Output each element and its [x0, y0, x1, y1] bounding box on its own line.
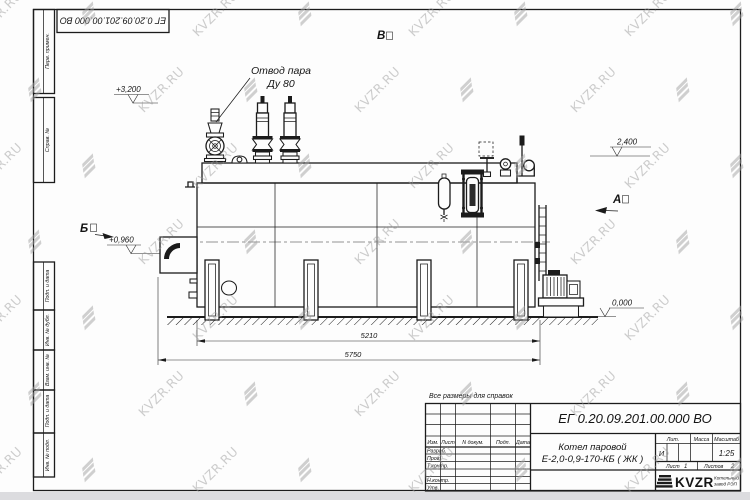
tb-row-prov: Пров. — [427, 456, 441, 462]
cad-canvas: Перв. примен. Справ. № Подп. и дата Инв.… — [0, 0, 750, 500]
stamp-vzam-inv: Взам. инв. № — [45, 354, 51, 386]
company-note-line1: Котельный — [714, 475, 739, 481]
tb-col-izm: Изм. — [427, 440, 438, 446]
tb-scale-label: Масштаб — [714, 437, 740, 443]
elevation-2400-label: 2,400 — [616, 138, 638, 147]
drawing-sheet: Перв. примен. Справ. № Подп. и дата Инв.… — [0, 0, 750, 500]
tb-sheets-label: Листов — [703, 464, 724, 470]
level-gauge-large — [461, 170, 484, 218]
callout-line1: Отвод пара — [251, 65, 311, 77]
dim-5210-label: 5210 — [361, 331, 379, 340]
stamp-perv-primen: Перв. примен. — [45, 33, 51, 69]
tb-col-list: Лист — [440, 440, 455, 446]
siphon-tube — [524, 160, 535, 171]
stamp-sprav-no: Справ. № — [45, 128, 51, 153]
tb-lit-value: И — [659, 449, 665, 458]
page-bottom-edge — [0, 492, 750, 500]
left-stamp-column: Перв. примен. Справ. № Подп. и дата Инв.… — [34, 10, 55, 478]
drum-right-fittings — [479, 136, 534, 177]
tb-sheet-value: 1 — [684, 464, 687, 470]
view-label-b: Б — [80, 223, 114, 239]
kvzr-spring-icon — [656, 475, 673, 488]
tb-sheets-value: 2 — [730, 464, 735, 470]
level-gauge-small — [439, 174, 451, 222]
tb-lit-label: Лит. — [666, 437, 679, 443]
view-a-letter: А — [612, 194, 621, 206]
tb-col-ndokum: N докум. — [462, 440, 483, 446]
elevation-0000: 0,000 — [588, 299, 644, 317]
rotated-doc-number: ЕГ 0.20.09.201.00.000 ВО — [60, 16, 166, 26]
view-b-letter: Б — [80, 223, 88, 235]
lifting-bracket — [185, 182, 195, 187]
tb-col-podp: Подп. — [496, 440, 510, 446]
callout-line2: Ду 80 — [266, 78, 295, 90]
dim-5750-label: 5750 — [345, 350, 363, 359]
safety-valve-1 — [253, 96, 273, 163]
tb-row-nkontr: Н.контр. — [427, 478, 449, 484]
manhole — [222, 281, 237, 295]
callout-leader — [216, 78, 250, 122]
tb-row-tkontr: Т.контр. — [427, 463, 448, 469]
elevation-0960: +0,960 — [107, 236, 160, 254]
elevation-3200-label: +3,200 — [116, 85, 141, 94]
dimension-5210: 5210 — [197, 320, 540, 365]
elevation-0000-label: 0,000 — [612, 299, 633, 308]
burner-box — [160, 237, 197, 273]
tb-row-utv: Утв. — [427, 485, 439, 491]
view-label-v: В — [377, 30, 393, 42]
reference-note: Все размеры для справок — [429, 392, 514, 400]
stamp-inv-podl: Инв. № подл. — [45, 439, 51, 471]
drum-dome — [232, 156, 247, 163]
company-name: KVZR — [675, 475, 714, 490]
feed-pump — [539, 270, 584, 317]
tb-col-data: Дата — [515, 440, 530, 446]
tb-sheet-label: Лист — [665, 464, 680, 470]
elevation-2400: 2,400 — [590, 138, 651, 157]
tb-doc-number: ЕГ 0.20.09.201.00.000 ВО — [558, 411, 712, 426]
view-label-a: А — [595, 194, 629, 214]
ground-hatch — [167, 318, 598, 325]
dashed-opening — [479, 142, 493, 156]
lifting-eye — [500, 159, 510, 169]
stamp-podp-data-2: Подп. и дата — [45, 395, 51, 428]
thermometer — [520, 136, 525, 146]
boiler-body — [185, 163, 550, 307]
support-legs — [205, 260, 528, 320]
ground — [167, 317, 598, 325]
stamp-inv-dubl: Инв. № дубл. — [45, 314, 51, 346]
tb-scale-value: 1:25 — [719, 449, 735, 458]
title-block: ЕГ 0.20.09.201.00.000 ВО Изм. Лист N док… — [426, 404, 741, 492]
rotated-doc-number-box: ЕГ 0.20.09.201.00.000 ВО — [57, 10, 169, 33]
company-logo: KVZR Котельный завод РЭП — [656, 475, 739, 491]
tb-product-line2: Е-2,0-0,9-170-КБ ( ЖК ) — [542, 454, 644, 465]
stamp-podp-data-1: Подп. и дата — [45, 270, 51, 303]
tb-mass-label: Масса — [694, 437, 710, 443]
tb-row-razrab: Разраб. — [427, 449, 446, 455]
view-v-letter: В — [377, 30, 385, 42]
side-ladder — [535, 205, 546, 281]
company-note-line2: завод РЭП — [713, 482, 738, 487]
elevation-3200: +3,200 — [114, 85, 158, 103]
steam-outlet-valve — [205, 109, 226, 162]
safety-valve-2 — [280, 96, 300, 163]
tb-product-line1: Котел паровой — [558, 442, 627, 453]
